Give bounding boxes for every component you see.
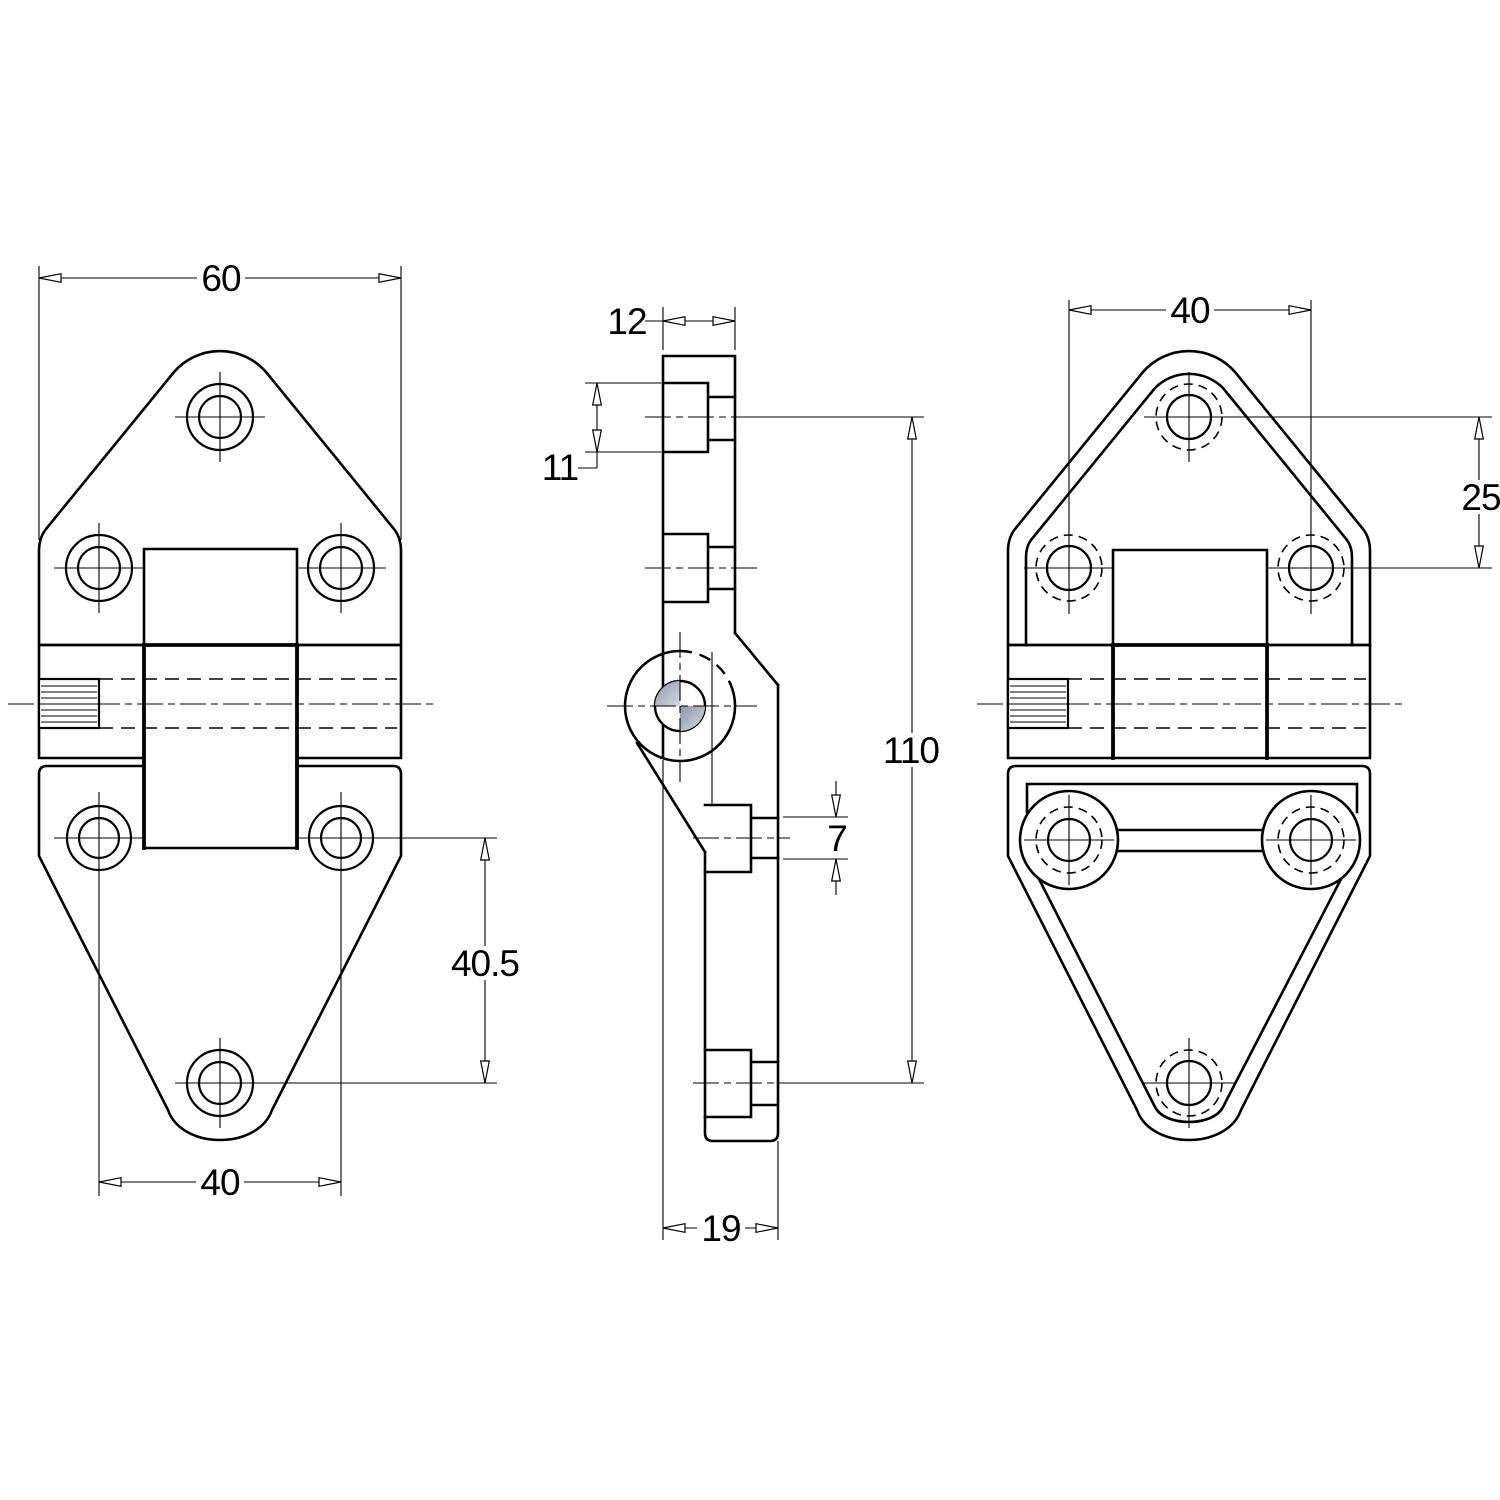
technical-drawing-canvas: 60 40.5 40 <box>0 0 1500 1500</box>
dim-label-back-upper-hole-offset: 25 <box>1461 477 1500 518</box>
drawing-page: 60 40.5 40 <box>0 0 1500 1500</box>
paper-background <box>0 0 1500 1500</box>
dim-label-front-lower-hole-offset: 40.5 <box>451 943 519 984</box>
tongue-mask <box>146 760 295 846</box>
dim-label-side-overall-depth: 19 <box>701 1208 740 1249</box>
dim-label-side-overall-height: 110 <box>883 730 939 771</box>
dim-label-side-hole-diameter: 7 <box>827 818 847 859</box>
dim-label-side-thickness: 12 <box>607 301 646 342</box>
dim-label-side-boss-diameter: 11 <box>542 447 578 488</box>
dim-label-back-upper-hole-spacing: 40 <box>1170 290 1210 331</box>
dim-label-front-lower-hole-spacing: 40 <box>200 1162 240 1203</box>
dim-label-front-width: 60 <box>201 258 241 299</box>
